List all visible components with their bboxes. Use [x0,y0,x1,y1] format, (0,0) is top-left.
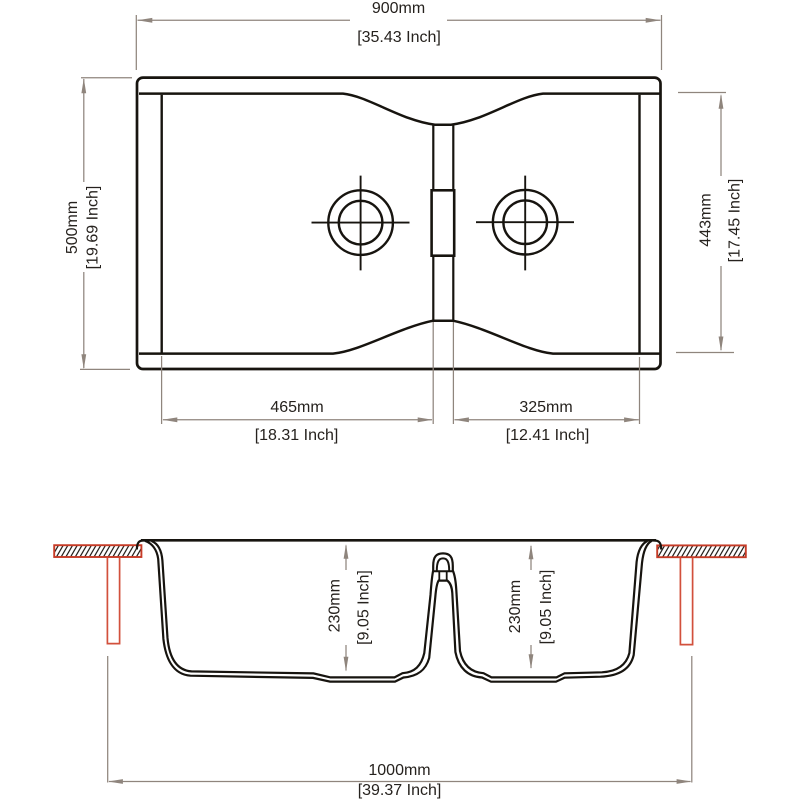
svg-text:230mm: 230mm [507,580,524,633]
svg-text:[35.43 Inch]: [35.43 Inch] [357,29,441,46]
svg-text:1000mm: 1000mm [368,762,430,779]
svg-text:325mm: 325mm [519,399,572,416]
svg-text:[9.05 Inch]: [9.05 Inch] [356,570,373,645]
svg-text:[39.37 Inch]: [39.37 Inch] [358,782,442,799]
svg-text:900mm: 900mm [372,0,425,17]
svg-text:[9.05 Inch]: [9.05 Inch] [538,570,555,645]
svg-text:465mm: 465mm [270,399,323,416]
svg-text:230mm: 230mm [326,579,343,632]
svg-text:[17.45 Inch]: [17.45 Inch] [727,179,744,263]
svg-text:500mm: 500mm [64,201,81,254]
svg-text:[19.69 Inch]: [19.69 Inch] [85,186,102,270]
svg-text:[18.31 Inch]: [18.31 Inch] [255,427,339,444]
svg-text:443mm: 443mm [698,193,715,246]
svg-text:[12.41 Inch]: [12.41 Inch] [506,427,590,444]
